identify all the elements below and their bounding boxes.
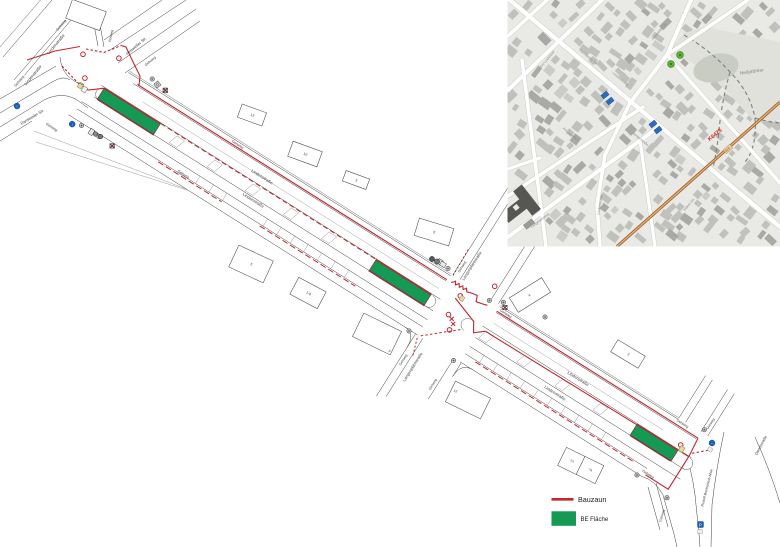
svg-text:P: P [699, 522, 702, 527]
svg-text:BE Fläche: BE Fläche [581, 517, 609, 523]
svg-text:←: ← [710, 441, 714, 445]
svg-text:↓: ↓ [71, 122, 73, 126]
svg-text:↓: ↓ [16, 104, 18, 108]
svg-text:Bauzaun: Bauzaun [578, 495, 606, 504]
